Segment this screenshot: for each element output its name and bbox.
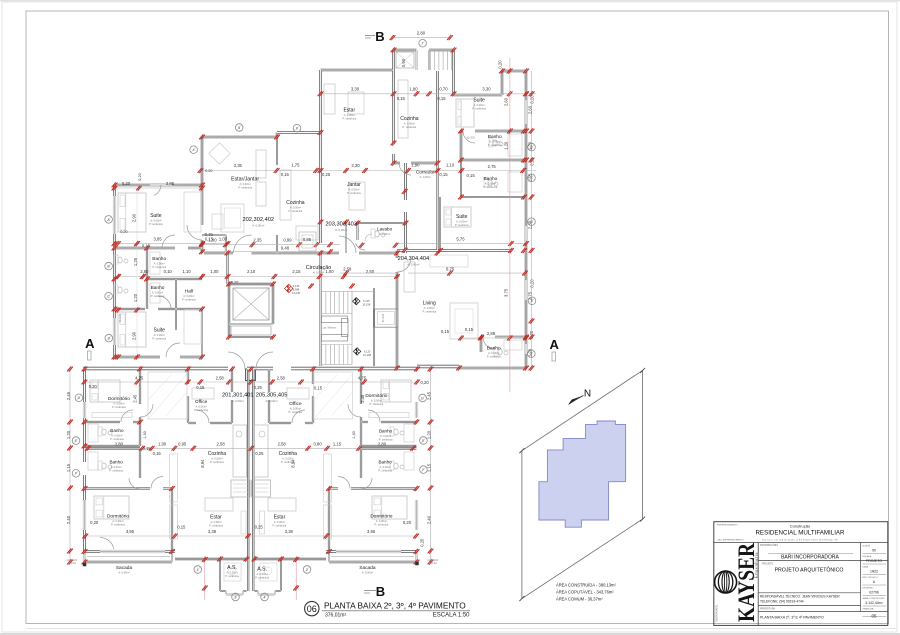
- svg-text:A: 0,00m²: A: 0,00m²: [210, 520, 221, 524]
- svg-text:Hall: Hall: [185, 289, 193, 295]
- svg-text:P: cerâmica: P: cerâmica: [273, 524, 287, 528]
- svg-text:1,10: 1,10: [183, 269, 192, 274]
- svg-text:0,25: 0,25: [255, 525, 264, 530]
- svg-text:2,58: 2,58: [343, 267, 352, 272]
- svg-text:P: cerâmica: P: cerâmica: [375, 522, 389, 526]
- svg-text:2,45: 2,45: [427, 391, 432, 400]
- svg-text:A: 0,00m²: A: 0,00m²: [211, 457, 222, 461]
- svg-text:2,35: 2,35: [253, 237, 262, 242]
- svg-text:Banho: Banho: [151, 285, 165, 291]
- svg-text:0,15: 0,15: [143, 446, 152, 451]
- svg-text:2,58: 2,58: [216, 376, 225, 381]
- svg-text:A: 0,00m²: A: 0,00m²: [348, 188, 359, 192]
- svg-text:202,302,402: 202,302,402: [242, 217, 274, 223]
- svg-text:P: cerâmica: P: cerâmica: [289, 410, 303, 414]
- svg-text:P: cerâmica: P: cerâmica: [289, 209, 303, 213]
- svg-text:1,00: 1,00: [208, 237, 217, 242]
- svg-text:A: 0,00m²: A: 0,00m²: [256, 572, 267, 576]
- svg-text:2,45: 2,45: [66, 391, 71, 400]
- svg-text:3,85: 3,85: [154, 237, 163, 242]
- svg-text:0,20: 0,20: [419, 538, 424, 547]
- svg-text:3,35: 3,35: [234, 163, 243, 168]
- svg-text:1,30: 1,30: [352, 431, 356, 438]
- svg-text:PLANTA BAIXA 2º, 3º E 4º PAVIM: PLANTA BAIXA 2º, 3º E 4º PAVIMENTO: [760, 616, 824, 620]
- svg-text:1,20: 1,20: [66, 430, 71, 439]
- svg-text:ESCALA: ESCALA: [863, 555, 872, 558]
- svg-text:P: cerâmica: P: cerâmica: [255, 576, 269, 580]
- svg-text:2,80: 2,80: [417, 31, 426, 36]
- svg-text:1,25: 1,25: [133, 257, 138, 266]
- svg-text:A: 0,00m²: A: 0,00m²: [404, 122, 415, 126]
- svg-text:2,75: 2,75: [488, 164, 497, 169]
- svg-text:Estar: Estar: [343, 108, 355, 114]
- svg-text:A: 0,00m²: A: 0,00m²: [376, 519, 387, 523]
- svg-text:Suite: Suite: [150, 213, 162, 219]
- svg-text:6,75: 6,75: [446, 267, 455, 272]
- svg-text:4,75: 4,75: [135, 376, 144, 381]
- svg-text:A: 0,00m²: A: 0,00m²: [252, 224, 264, 228]
- svg-text:06: 06: [307, 604, 317, 614]
- svg-text:Banho: Banho: [379, 428, 393, 433]
- svg-text:2,60: 2,60: [140, 269, 149, 274]
- svg-text:A: 0,00m²: A: 0,00m²: [456, 220, 467, 224]
- svg-text:Lavabo: Lavabo: [377, 227, 393, 232]
- svg-text:F: F: [422, 468, 424, 472]
- svg-text:A: 0,00m²: A: 0,00m²: [335, 228, 347, 232]
- svg-text:P: cerâmica: P: cerâmica: [342, 117, 356, 121]
- svg-text:DIVISA: DIVISA: [68, 562, 76, 565]
- svg-text:A: 0,00m²: A: 0,00m²: [239, 182, 250, 186]
- svg-text:4: 4: [193, 148, 195, 152]
- svg-text:3,38: 3,38: [208, 529, 217, 534]
- svg-text:P: cerâmica: P: cerâmica: [378, 469, 392, 473]
- svg-text:6,135: 6,135: [293, 284, 300, 288]
- svg-text:0,25: 0,25: [254, 385, 263, 390]
- svg-text:P: cerâmica: P: cerâmica: [379, 437, 393, 441]
- svg-text:2,58: 2,58: [277, 376, 286, 381]
- svg-text:TELEFONE: (54) 99193-4744: TELEFONE: (54) 99193-4744: [760, 600, 804, 604]
- svg-text:F: F: [75, 472, 77, 476]
- svg-text:Dormitório: Dormitório: [108, 396, 130, 402]
- svg-text:6,125: 6,125: [363, 299, 370, 303]
- svg-text:P: cerâmica: P: cerâmica: [281, 460, 295, 464]
- svg-text:Banho: Banho: [487, 346, 501, 352]
- svg-text:A: 0,00m²: A: 0,00m²: [290, 406, 301, 410]
- svg-text:3.142,44m²: 3.142,44m²: [865, 601, 883, 605]
- svg-text:Suite: Suite: [153, 328, 165, 334]
- svg-text:P: cerâmica: P: cerâmica: [151, 294, 165, 298]
- svg-text:4: 4: [264, 595, 266, 599]
- svg-text:0,15: 0,15: [397, 96, 406, 101]
- svg-text:P: cerâmica: P: cerâmica: [152, 265, 166, 269]
- svg-text:Office: Office: [289, 401, 302, 407]
- svg-text:1,15: 1,15: [66, 463, 71, 472]
- svg-text:0,15: 0,15: [314, 386, 323, 391]
- svg-text:P: cerâmica: P: cerâmica: [225, 574, 239, 578]
- svg-text:A: 0,00m²: A: 0,00m²: [118, 570, 129, 574]
- svg-text:A: 0,00m²: A: 0,00m²: [150, 219, 161, 223]
- svg-text:0,95: 0,95: [178, 441, 187, 446]
- svg-text:Rua Carso, Lote 18 A 16, Quadr: Rua Carso, Lote 18 A 16, Quadra - Q B ô …: [762, 539, 838, 542]
- svg-text:A: 0,00m²: A: 0,00m²: [489, 140, 500, 144]
- svg-text:Dormitório: Dormitório: [370, 513, 392, 519]
- svg-text:9,48: 9,48: [281, 246, 290, 251]
- svg-text:Circulação: Circulação: [306, 265, 331, 271]
- svg-text:RESIDENCIAL MULTIFAMILIAR: RESIDENCIAL MULTIFAMILIAR: [755, 530, 845, 537]
- svg-text:A: 0,00m²: A: 0,00m²: [344, 113, 355, 117]
- svg-text:A.S.: A.S.: [227, 565, 237, 571]
- svg-text:1,80: 1,80: [409, 87, 418, 92]
- svg-text:PROJETO ARQUITETÔNICO: PROJETO ARQUITETÔNICO: [775, 567, 844, 574]
- svg-text:2: 2: [306, 568, 308, 572]
- svg-text:90: 90: [872, 549, 876, 553]
- svg-text:0,15: 0,15: [441, 329, 450, 334]
- svg-text:6: 6: [296, 127, 298, 131]
- svg-text:0,25: 0,25: [322, 172, 331, 177]
- svg-text:Dormitório: Dormitório: [365, 393, 387, 399]
- svg-text:Suite: Suite: [473, 98, 485, 104]
- svg-text:Banho: Banho: [488, 134, 502, 140]
- svg-text:0,10: 0,10: [164, 269, 173, 274]
- svg-text:A: 0,00m²: A: 0,00m²: [424, 306, 435, 310]
- svg-text:2,45: 2,45: [360, 394, 365, 403]
- svg-text:Engenharia: Engenharia: [754, 552, 759, 578]
- svg-text:P: cerâmica: P: cerâmica: [111, 522, 125, 526]
- svg-text:3,30: 3,30: [351, 87, 360, 92]
- svg-text:6,125: 6,125: [364, 349, 371, 353]
- svg-text:0,15: 0,15: [196, 385, 205, 390]
- svg-text:0,26: 0,26: [231, 281, 238, 285]
- svg-text:A: 0,00m²: A: 0,00m²: [380, 434, 391, 438]
- svg-text:1,30: 1,30: [143, 431, 147, 438]
- svg-text:1,00: 1,00: [158, 441, 167, 446]
- svg-text:PLANTA BAIXA 2º, 3º, 4º PAVIME: PLANTA BAIXA 2º, 3º, 4º PAVIMENTO: [324, 601, 466, 611]
- svg-text:Estar/Jantar: Estar/Jantar: [231, 177, 259, 183]
- svg-text:A: 0,00m²: A: 0,00m²: [195, 405, 206, 409]
- svg-text:P: cerâmica: P: cerâmica: [487, 355, 501, 359]
- svg-text:91x332: 91x332: [381, 313, 385, 322]
- svg-text:P: cerâmica: P: cerâmica: [149, 222, 163, 226]
- svg-text:Estar: Estar: [274, 515, 286, 521]
- svg-text:0,15: 0,15: [465, 327, 474, 332]
- svg-text:0,80: 0,80: [314, 441, 323, 446]
- svg-text:5,75: 5,75: [456, 237, 465, 242]
- svg-text:201,301,401: 201,301,401: [222, 393, 254, 399]
- svg-text:3,30: 3,30: [351, 163, 360, 168]
- svg-text:3: 3: [235, 595, 237, 599]
- svg-text:Jantar: Jantar: [347, 182, 361, 188]
- svg-text:3,75: 3,75: [504, 288, 509, 297]
- svg-text:Office: Office: [195, 399, 208, 405]
- svg-text:A: 0,00m²: A: 0,00m²: [113, 402, 124, 406]
- svg-text:A: 0,00m²: A: 0,00m²: [111, 434, 122, 438]
- svg-text:P: cerâmica: P: cerâmica: [472, 107, 486, 111]
- svg-text:Dormitório: Dormitório: [107, 513, 129, 519]
- svg-text:PRANCHA: PRANCHA: [863, 608, 874, 611]
- svg-text:Corredor: Corredor: [416, 169, 435, 175]
- svg-text:0,20: 0,20: [122, 181, 131, 186]
- svg-text:0,99: 0,99: [283, 237, 292, 242]
- svg-text:3,85: 3,85: [166, 181, 175, 186]
- svg-text:0,20: 0,20: [530, 279, 535, 288]
- svg-text:3,30: 3,30: [482, 87, 491, 92]
- svg-text:A: 0,00m²: A: 0,00m²: [154, 333, 165, 337]
- svg-text:Cozinha: Cozinha: [286, 200, 305, 206]
- svg-text:A: 0,00m²: A: 0,00m²: [488, 351, 499, 355]
- svg-text:A: 0,00m²: A: 0,00m²: [226, 571, 237, 575]
- svg-text:1,90: 1,90: [411, 163, 420, 168]
- svg-text:2,58: 2,58: [278, 441, 287, 446]
- svg-text:P: cerâmica: P: cerâmica: [370, 402, 384, 406]
- svg-text:8,94: 8,94: [200, 459, 205, 468]
- svg-text:A: 0,00m²: A: 0,00m²: [379, 232, 390, 236]
- svg-text:A.S.: A.S.: [257, 567, 267, 573]
- svg-text:Sacada: Sacada: [359, 565, 376, 571]
- svg-text:A: 0,00m²: A: 0,00m²: [379, 465, 390, 469]
- svg-text:Lar. Mínimo: Lar. Mínimo: [323, 326, 337, 330]
- svg-text:10,198: 10,198: [363, 353, 371, 357]
- svg-text:0,15: 0,15: [177, 525, 186, 530]
- svg-text:2,80: 2,80: [378, 441, 387, 446]
- svg-text:8,988: 8,988: [293, 288, 300, 292]
- svg-text:0,15: 0,15: [153, 451, 162, 456]
- svg-text:0,15: 0,15: [439, 172, 448, 177]
- svg-text:2,60: 2,60: [528, 105, 533, 114]
- svg-text:Cozinha: Cozinha: [208, 451, 227, 457]
- svg-text:2,40: 2,40: [66, 515, 71, 524]
- svg-text:205,305,405: 205,305,405: [256, 393, 288, 399]
- svg-text:A: 0,00m²: A: 0,00m²: [362, 570, 373, 574]
- svg-text:RESPONSÁVEL TÉCNICO: JEAN VINI: RESPONSÁVEL TÉCNICO: JEAN VINICIUS KAYSE…: [760, 594, 840, 599]
- svg-text:A: 0,00m²: A: 0,00m²: [313, 271, 324, 275]
- svg-text:203,303,403: 203,303,403: [325, 222, 357, 228]
- svg-text:NORTE: NORTE: [863, 546, 871, 548]
- svg-text:Sacada: Sacada: [116, 565, 133, 571]
- svg-text:0,15: 0,15: [205, 232, 214, 237]
- svg-text:P: cerâmica: P: cerâmica: [194, 408, 208, 412]
- svg-text:02796: 02796: [869, 591, 879, 595]
- svg-text:3,95: 3,95: [126, 529, 135, 534]
- svg-text:1N22: 1N22: [870, 570, 878, 574]
- svg-text:DATA: DATA: [863, 566, 869, 569]
- svg-text:1,00: 1,00: [219, 237, 228, 242]
- svg-text:N: N: [584, 389, 591, 400]
- svg-text:91x120: 91x120: [118, 313, 122, 322]
- svg-text:1,20: 1,20: [504, 141, 509, 150]
- svg-text:A: 0,00m²: A: 0,00m²: [266, 399, 278, 403]
- svg-text:0,20: 0,20: [138, 173, 142, 180]
- svg-text:0,20: 0,20: [120, 230, 127, 234]
- svg-text:0,15: 0,15: [281, 172, 290, 177]
- svg-text:P: cerâmica: P: cerâmica: [112, 405, 126, 409]
- svg-text:Banho: Banho: [109, 459, 123, 464]
- svg-text:2,45: 2,45: [133, 394, 138, 403]
- svg-text:2,40: 2,40: [427, 515, 432, 524]
- svg-text:Banho: Banho: [110, 428, 124, 433]
- svg-text:PREFEITURA: PREFEITURA: [760, 608, 776, 611]
- svg-text:DIVISA: DIVISA: [429, 562, 437, 565]
- svg-text:1,20: 1,20: [133, 293, 138, 302]
- svg-text:Suite: Suite: [456, 214, 468, 220]
- svg-text:0,20: 0,20: [89, 384, 98, 389]
- svg-text:0,15: 0,15: [437, 96, 446, 101]
- svg-text:2,88: 2,88: [487, 331, 496, 336]
- svg-text:1: 1: [197, 568, 199, 572]
- svg-text:Living: Living: [423, 301, 436, 307]
- svg-text:1,15: 1,15: [333, 441, 342, 446]
- svg-text:0,70: 0,70: [439, 87, 448, 92]
- svg-text:5: 5: [238, 126, 240, 130]
- svg-text:P: cerâmica: P: cerâmica: [209, 524, 223, 528]
- svg-text:0,20: 0,20: [403, 520, 412, 525]
- svg-text:Cozinha: Cozinha: [279, 451, 298, 457]
- svg-text:A: 0,00m²: A: 0,00m²: [473, 103, 484, 107]
- svg-text:1,10: 1,10: [446, 163, 455, 168]
- svg-text:376,01m²: 376,01m²: [325, 613, 346, 619]
- svg-text:91x332: 91x332: [466, 136, 475, 140]
- svg-text:ÁREA COPUTÁVEL - 343,76m²: ÁREA COPUTÁVEL - 343,76m²: [556, 590, 614, 595]
- svg-text:2,60: 2,60: [504, 97, 509, 106]
- svg-text:P: cerâmica: P: cerâmica: [110, 437, 124, 441]
- svg-text:ÁREA CONSTRUÍDA - 380,13m²: ÁREA CONSTRUÍDA - 380,13m²: [556, 583, 616, 588]
- svg-text:2,90: 2,90: [132, 213, 137, 222]
- svg-text:CAU_EMPREENDIMENTO: CAU_EMPREENDIMENTO: [717, 538, 744, 541]
- svg-text:P: cerâmica: P: cerâmica: [484, 185, 498, 189]
- svg-text:1,20: 1,20: [427, 430, 432, 439]
- svg-text:PROJETO: PROJETO: [866, 559, 882, 563]
- svg-text:2,10: 2,10: [247, 269, 256, 274]
- svg-text:B: B: [375, 29, 384, 44]
- svg-text:P: cerâmica: P: cerâmica: [455, 223, 469, 227]
- svg-text:PROPRIETÁRIO: PROPRIETÁRIO: [760, 544, 778, 547]
- svg-text:P: cerâmica: P: cerâmica: [210, 460, 224, 464]
- svg-text:12,045: 12,045: [292, 291, 300, 295]
- svg-text:2,58: 2,58: [217, 441, 226, 446]
- svg-text:ÁREA CONSTRUÇÃO: ÁREA CONSTRUÇÃO: [863, 597, 885, 600]
- svg-text:204,304,404: 204,304,404: [398, 256, 430, 262]
- svg-text:EMPREENDIMENTO: EMPREENDIMENTO: [717, 525, 738, 527]
- svg-text:3,38: 3,38: [285, 529, 294, 534]
- svg-text:A: 0,00m²: A: 0,00m²: [282, 457, 293, 461]
- svg-text:A: 0,00m²: A: 0,00m²: [420, 175, 431, 179]
- svg-text:1,75: 1,75: [291, 163, 300, 168]
- svg-text:3,95: 3,95: [367, 529, 376, 534]
- svg-text:PROJETO: PROJETO: [762, 563, 773, 566]
- svg-text:7: 7: [422, 42, 424, 46]
- svg-text:2,15: 2,15: [292, 269, 301, 274]
- svg-text:A: 0,00m²: A: 0,00m²: [371, 399, 382, 403]
- svg-text:2,90: 2,90: [132, 331, 137, 340]
- svg-text:P: cerâmica: P: cerâmica: [238, 186, 252, 190]
- svg-text:P: cerâmica: P: cerâmica: [109, 468, 123, 472]
- svg-text:A: 0,00m²: A: 0,00m²: [110, 465, 121, 469]
- svg-text:A: 0,00m²: A: 0,00m²: [232, 399, 244, 403]
- svg-text:A: 0,00m²: A: 0,00m²: [183, 294, 194, 298]
- svg-text:0,20: 0,20: [205, 169, 212, 173]
- svg-text:P: cerâmica: P: cerâmica: [422, 310, 436, 314]
- svg-text:2,80: 2,80: [115, 441, 124, 446]
- svg-text:0,20: 0,20: [421, 380, 430, 385]
- svg-text:A: 0,00m²: A: 0,00m²: [154, 262, 165, 266]
- svg-text:Banho: Banho: [152, 256, 166, 262]
- svg-text:Construção: Construção: [790, 524, 811, 529]
- svg-text:Banho: Banho: [378, 460, 392, 465]
- svg-text:A: A: [550, 337, 560, 352]
- svg-text:Estar: Estar: [210, 515, 222, 521]
- svg-text:A: 0,00m²: A: 0,00m²: [274, 520, 285, 524]
- svg-text:A: A: [85, 336, 95, 351]
- svg-text:4,75: 4,75: [358, 376, 367, 381]
- svg-text:0,20: 0,20: [90, 520, 99, 525]
- svg-text:DESENHO: DESENHO: [863, 588, 874, 590]
- svg-text:Banho: Banho: [483, 176, 497, 182]
- svg-text:0,25: 0,25: [255, 451, 264, 456]
- svg-text:A: 0,00m²: A: 0,00m²: [152, 291, 163, 295]
- svg-text:ESCALA 1:50: ESCALA 1:50: [433, 613, 470, 619]
- svg-text:P: cerâmica: P: cerâmica: [152, 337, 166, 341]
- svg-text:A: 0,00m²: A: 0,00m²: [485, 181, 496, 185]
- svg-text:BARI INCORPORADORA: BARI INCORPORADORA: [781, 554, 839, 560]
- svg-text:A: 0,00m²: A: 0,00m²: [112, 519, 123, 523]
- svg-text:B: B: [376, 584, 385, 599]
- svg-text:A: 0,00m²: A: 0,00m²: [407, 263, 419, 267]
- svg-text:05: 05: [871, 614, 877, 619]
- svg-text:0,86: 0,86: [303, 237, 312, 242]
- svg-text:P: cerâmica: P: cerâmica: [488, 143, 502, 147]
- svg-text:A: 0,00m²: A: 0,00m²: [290, 206, 301, 210]
- svg-text:P: cerâmica: P: cerâmica: [182, 298, 196, 302]
- svg-text:P: cerâmica: P: cerâmica: [347, 191, 361, 195]
- svg-text:0,15: 0,15: [467, 173, 476, 178]
- svg-text:0,20: 0,20: [497, 60, 502, 69]
- svg-text:0,90: 0,90: [401, 58, 406, 67]
- svg-text:10,198: 10,198: [362, 303, 370, 307]
- svg-text:Cozinha: Cozinha: [400, 116, 419, 122]
- svg-text:REV. TÉCNICO: REV. TÉCNICO: [863, 576, 879, 579]
- svg-text:RESPONSAVEL: RESPONSAVEL: [716, 604, 719, 622]
- svg-text:F: F: [530, 352, 532, 356]
- svg-text:ÁREA COMUM - 36,37m²: ÁREA COMUM - 36,37m²: [556, 597, 603, 602]
- svg-text:1,00: 1,00: [210, 269, 219, 274]
- svg-text:P: cerâmica: P: cerâmica: [403, 125, 417, 129]
